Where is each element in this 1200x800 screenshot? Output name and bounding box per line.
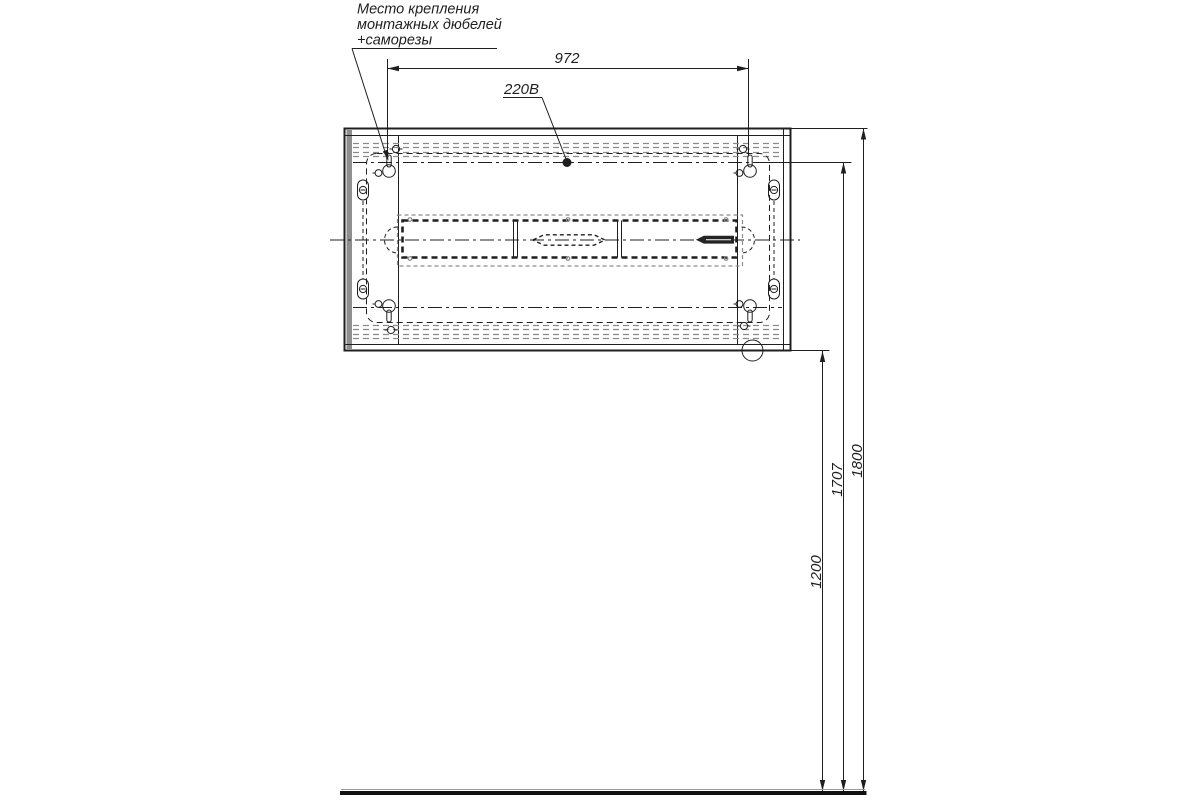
dim-arrow-icon: [861, 129, 866, 140]
screw-icon: [737, 145, 750, 152]
rail-screw-bolt: [697, 236, 734, 243]
keyhole-top-right: [734, 155, 757, 177]
mount-callout: Место крепления монтажных дюбелей +самор…: [352, 2, 502, 162]
rail-tick-screws: [408, 218, 728, 261]
height-dimensions: 1200 1707 1800: [757, 129, 868, 792]
mount-callout-line1: Место крепления: [357, 2, 479, 18]
screw-icon: [390, 145, 403, 152]
slot-screw-icon: [769, 279, 780, 299]
keyhole-bottom-right: [734, 300, 757, 322]
installation-drawing: Место крепления монтажных дюбелей +самор…: [0, 0, 1200, 800]
mount-callout-line3: +саморезы: [357, 33, 432, 49]
keyhole-top-left: [373, 155, 396, 177]
screw-icon: [385, 326, 398, 333]
dim-arrow-icon: [841, 163, 846, 174]
installation-drawing-page: Место крепления монтажных дюбелей +самор…: [0, 0, 1200, 800]
dim-972-label: 972: [554, 50, 580, 67]
power-callout-label: 220В: [503, 81, 539, 98]
dim-1800-label: 1800: [849, 444, 866, 478]
floor-line: [340, 790, 867, 794]
dimension-1200: 1200: [808, 351, 825, 791]
rail-bold-dashed: [403, 221, 737, 258]
power-point-dot: [563, 158, 572, 167]
power-callout: 220В: [503, 81, 572, 167]
dim-1200-label: 1200: [808, 555, 825, 589]
centerlines: [330, 163, 800, 308]
dimension-972: 972: [388, 50, 749, 156]
dim-arrow-icon: [737, 66, 749, 71]
dim-arrow-icon: [388, 66, 400, 71]
slot-screw-icon: [769, 180, 780, 200]
dim-arrow-icon: [820, 351, 825, 362]
dim-1707-label: 1707: [829, 463, 846, 497]
dimension-1800: 1800: [849, 129, 866, 792]
keyhole-bottom-left: [373, 300, 396, 322]
mount-callout-leader: [352, 49, 387, 159]
mount-callout-line2: монтажных дюбелей: [357, 17, 502, 33]
dimension-1707: 1707: [829, 163, 846, 792]
